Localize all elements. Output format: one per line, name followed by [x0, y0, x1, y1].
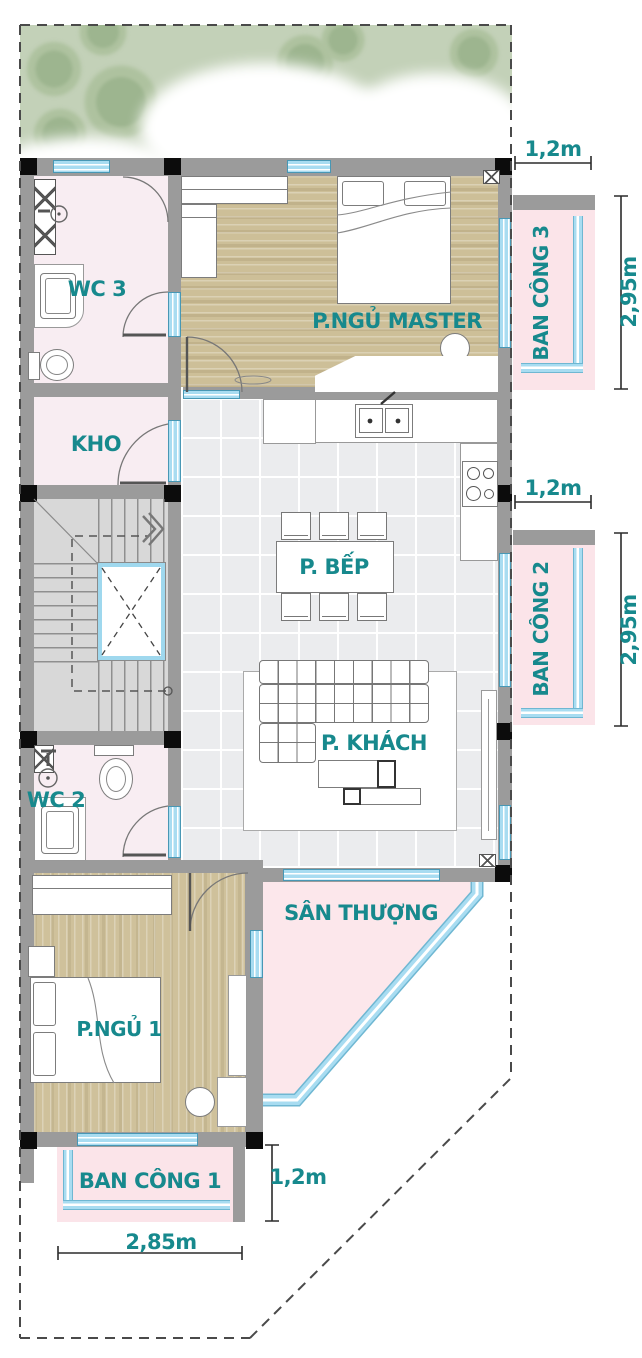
toilet-bowl-inner	[106, 766, 126, 792]
balcony3-railing	[521, 363, 583, 373]
column	[164, 731, 181, 748]
dimension-balcony3-depth: 2,95m	[617, 256, 641, 327]
room-label-wc2: WC 2	[27, 788, 86, 812]
sofa-chaise	[259, 723, 316, 763]
column	[495, 865, 512, 882]
shaft-icon	[479, 854, 496, 867]
balcony2-railing	[521, 708, 583, 718]
balcony1-railing	[63, 1200, 230, 1210]
wall-wc3-kho	[20, 383, 181, 397]
wall-left-stub	[20, 1147, 34, 1183]
floor-plan: WC 3 KHO P.NGỦ MASTER BAN CÔNG 3 P. BẾP …	[0, 0, 642, 1358]
balcony2-railing	[573, 548, 583, 708]
room-label-balcony2: BAN CÔNG 2	[529, 561, 553, 696]
stair-flight-upper	[98, 499, 165, 563]
dimension-balcony3-width: 1,2m	[524, 137, 581, 161]
stair-flight-left	[34, 563, 98, 663]
burner	[467, 467, 480, 480]
dining-chair	[281, 512, 311, 540]
bedroom1-desk	[217, 1077, 247, 1127]
burner	[483, 468, 494, 479]
tree-icon	[320, 25, 366, 63]
nightstand	[28, 946, 55, 977]
wall-stairs-wc2	[20, 731, 181, 745]
dimension-balcony1-width: 2,85m	[125, 1230, 196, 1254]
door-panel-line	[488, 699, 489, 831]
stair-flight-lower	[98, 660, 165, 731]
kho-door-glass	[168, 420, 181, 482]
wc2-sink	[41, 806, 79, 854]
sink-basin	[46, 811, 74, 849]
sofa-seat	[259, 684, 429, 723]
room-label-terrace: SÂN THƯỢNG	[284, 901, 438, 925]
column	[246, 1132, 263, 1149]
balcony2-parapet	[513, 530, 595, 545]
wc2-door-glass	[168, 806, 181, 858]
master-door-glass	[183, 390, 240, 399]
sink-bowl-left	[359, 408, 383, 433]
master-wardrobe	[181, 176, 288, 204]
column	[20, 1132, 37, 1149]
dining-chair	[281, 593, 311, 621]
column	[20, 158, 37, 175]
wc2-toilet-tank	[94, 745, 134, 756]
room-label-kitchen: P. BẾP	[299, 555, 369, 579]
balcony1-window	[77, 1133, 198, 1146]
terrace-window	[283, 869, 440, 881]
kitchen-sink	[355, 404, 413, 438]
tree-icon	[78, 25, 128, 57]
pillow	[342, 181, 384, 206]
balcony2-glass-door	[499, 553, 511, 687]
stove	[462, 461, 498, 507]
dining-chair	[357, 512, 387, 540]
fridge	[263, 399, 316, 444]
dining-chair	[319, 593, 349, 621]
room-label-balcony3: BAN CÔNG 3	[529, 225, 553, 360]
balcony3-glass-door	[499, 218, 511, 348]
room-label-master: P.NGỦ MASTER	[312, 309, 482, 333]
stair-void	[98, 563, 165, 660]
room-label-wc3: WC 3	[68, 277, 127, 301]
room-label-balcony1: BAN CÔNG 1	[79, 1169, 221, 1193]
pillow	[33, 1032, 56, 1076]
wc3-toilet-bowl	[40, 349, 74, 381]
wall-kho-stairs	[20, 485, 181, 499]
column	[20, 485, 37, 502]
shower-tray-icon	[34, 745, 54, 773]
room-label-kho: KHO	[71, 432, 121, 456]
room-label-living: P. KHÁCH	[321, 731, 427, 755]
window	[499, 805, 511, 860]
tv-console-box	[343, 788, 361, 805]
sofa-backrest	[259, 660, 429, 684]
wall-inner-vertical	[168, 158, 181, 873]
wall-balcony1-right	[233, 1147, 245, 1222]
sink-bowl-right	[385, 408, 409, 433]
tv-console-box	[377, 760, 396, 788]
bedroom1-wardrobe	[32, 875, 172, 915]
shaft-icon	[483, 170, 500, 184]
bedroom1-window	[250, 930, 263, 978]
tree-icon	[448, 27, 500, 79]
dimension-balcony2-width: 1,2m	[524, 476, 581, 500]
window	[287, 160, 331, 173]
master-wardrobe-side	[181, 204, 217, 278]
column	[495, 723, 512, 740]
shower-tray-icon	[34, 179, 56, 255]
pillow	[404, 181, 446, 206]
dining-chair	[319, 512, 349, 540]
bedroom1-tv-panel	[228, 975, 247, 1076]
tree-icon	[25, 40, 83, 98]
garden-trees	[20, 25, 512, 160]
wc3-toilet-tank	[28, 352, 40, 380]
burner	[466, 486, 481, 501]
wall-wc2-bedroom1	[20, 860, 263, 873]
wall-bedroom1-right	[245, 873, 263, 1147]
bedroom1-stool	[185, 1087, 215, 1117]
window	[53, 160, 110, 173]
balcony3-railing	[573, 216, 583, 363]
dining-chair	[357, 593, 387, 621]
toilet-bowl-inner	[46, 355, 68, 375]
living-door-panel	[481, 690, 497, 840]
column	[164, 158, 181, 175]
column	[164, 485, 181, 502]
pillow	[33, 982, 56, 1026]
balcony3-parapet	[513, 195, 595, 210]
dimension-balcony2-depth: 2,95m	[617, 594, 641, 665]
wc3-door-glass	[168, 292, 181, 337]
room-label-bedroom1: P.NGỦ 1	[76, 1017, 161, 1041]
dimension-balcony1-depth: 1,2m	[269, 1165, 326, 1189]
burner	[484, 489, 494, 499]
wc2-toilet-bowl	[99, 758, 133, 800]
